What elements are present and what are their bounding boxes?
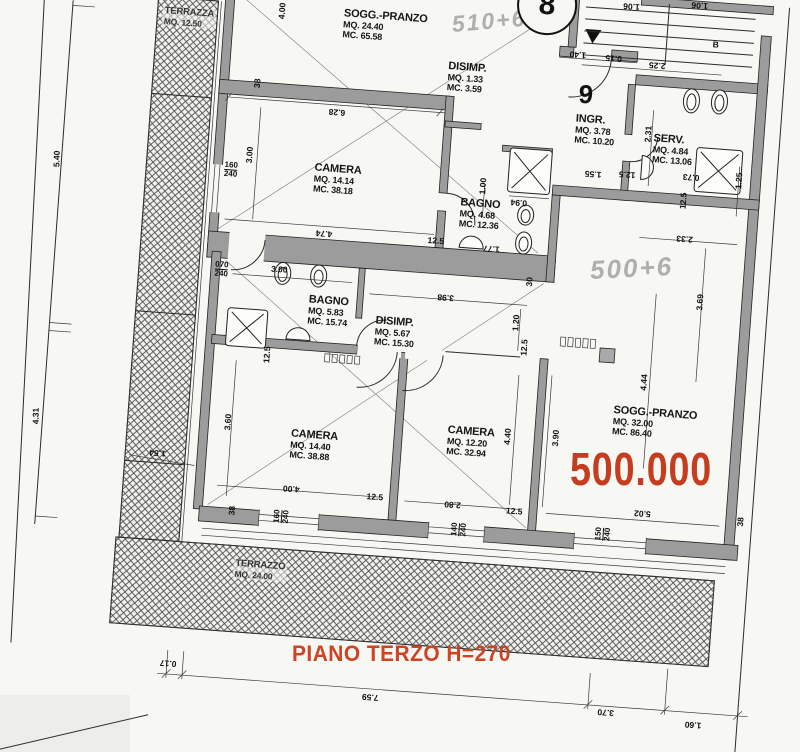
dimension-label: 0.15 [605, 54, 622, 64]
dimension-label: 2.31 [643, 126, 653, 143]
dimension-label: 150240 [594, 527, 612, 542]
dimension-label: 160240 [273, 509, 291, 524]
dimension-label: 6.28 [328, 107, 345, 117]
dimension-label: 3.00 [245, 146, 255, 163]
dimension-label: 1.20 [511, 314, 521, 331]
dimension-label: 12.5 [506, 506, 523, 516]
dimension-label: 3.70 [597, 708, 614, 718]
dimension-label: B [712, 40, 719, 49]
room-label-camera-b2: CAMERA MQ. 12.20 MC. 32.94 [446, 424, 495, 460]
room-label-bagno-a: BAGNO MQ. 4.68 MC. 12.36 [458, 196, 500, 231]
dimension-label: 3.90 [551, 430, 561, 447]
room-label-serv-a: SERV. MQ. 4.84 MC. 13.06 [652, 132, 694, 167]
room-label-sogg-pranzo-b: SOGG.-PRANZO MQ. 32.00 MC. 86.40 [612, 404, 698, 443]
dimension-label: 0.94 [510, 198, 527, 208]
dimension-label: 0.73 [683, 172, 700, 182]
dimension-label: 30 [525, 277, 534, 287]
handwritten-note-top: 510+6 [451, 5, 528, 38]
dimension-label: 3.98 [437, 293, 454, 303]
floor-title: PIANO TERZO H=270 [292, 641, 511, 667]
dimension-label: 070240 [214, 260, 229, 278]
room-label-camera-a: CAMERA MQ. 14.14 MC. 38.18 [313, 162, 362, 198]
dimension-label: 140240 [450, 522, 468, 537]
dimension-label: 1.55 [585, 169, 602, 179]
room-label-terrazzo: TERRAZZO MQ. 24.00 [232, 559, 287, 583]
dimension-label: 1.06 [691, 1, 708, 11]
handwritten-note-middle: 500+6 [589, 251, 673, 286]
dimension-label: 1.06 [623, 2, 640, 12]
dimension-label: 0.17 [160, 659, 177, 669]
floor-plan: SOGG.-PRANZO MQ. 24.40 MC. 65.58 DISIMP.… [0, 0, 798, 752]
dimension-label: 12.5 [619, 170, 636, 180]
room-label-disimp-a: DISIMP. MQ. 1.33 MC. 3.59 [446, 60, 486, 95]
dimension-label: 5.02 [634, 509, 651, 519]
dimension-label: 1.77 [483, 244, 500, 254]
dimension-label: 160240 [224, 161, 239, 179]
room-label-terrazza: TERRAZZA MQ. 12.50 [162, 6, 217, 30]
dimension-label: 1.60 [684, 720, 701, 730]
apartment-door-number: 9 [578, 79, 595, 111]
dimension-label: 38 [253, 78, 262, 88]
dimension-label: 7.59 [362, 692, 379, 702]
dimension-label: 3.69 [695, 294, 705, 311]
scanned-floorplan-page: SOGG.-PRANZO MQ. 24.40 MC. 65.58 DISIMP.… [0, 0, 800, 752]
dimension-label: 4.31 [32, 408, 41, 425]
dimension-label: 2.33 [676, 234, 693, 244]
dimension-label: 4.40 [503, 428, 513, 445]
dimension-label: 1.40 [569, 50, 586, 60]
dimension-label: 4.44 [639, 374, 649, 391]
dimension-label: 4.74 [315, 229, 332, 239]
room-label-sogg-pranzo-a: SOGG.-PRANZO MQ. 24.40 MC. 65.58 [342, 7, 428, 46]
dimension-label: 5.40 [52, 150, 61, 167]
dimension-label: 12.5 [427, 236, 444, 246]
room-label-camera-b1: CAMERA MQ. 14.40 MC. 38.88 [289, 427, 338, 463]
dimension-label: 38 [736, 517, 745, 527]
room-label-disimp-b: DISIMP. MQ. 5.67 MC. 15.30 [374, 314, 416, 349]
price-annotation: 500.000 [570, 442, 712, 496]
dimension-label: 4.00 [277, 2, 287, 19]
floor-plan-linework [0, 0, 798, 752]
dimension-label: 1.54 [149, 448, 166, 458]
dimension-label: 2.25 [649, 61, 666, 71]
dimension-label: 12.5 [519, 339, 529, 356]
dimension-label: 1.00 [478, 178, 488, 195]
room-label-ingr-a: INGR. MQ. 3.78 MC. 10.20 [574, 113, 616, 148]
dimension-label: 12.5 [262, 346, 272, 363]
dimension-label: 1.25 [734, 172, 744, 189]
dimension-label: 12.5 [679, 192, 689, 209]
dimension-label: 4.00 [283, 484, 300, 494]
room-label-bagno-b: BAGNO MQ. 5.83 MC. 15.74 [307, 293, 349, 328]
dimension-label: 38 [227, 506, 236, 516]
dimension-label: 3.60 [223, 414, 233, 431]
dimension-label: 12.5 [366, 492, 383, 502]
dimension-label: 2.80 [444, 500, 461, 510]
dimension-label: 3.00 [271, 265, 288, 275]
